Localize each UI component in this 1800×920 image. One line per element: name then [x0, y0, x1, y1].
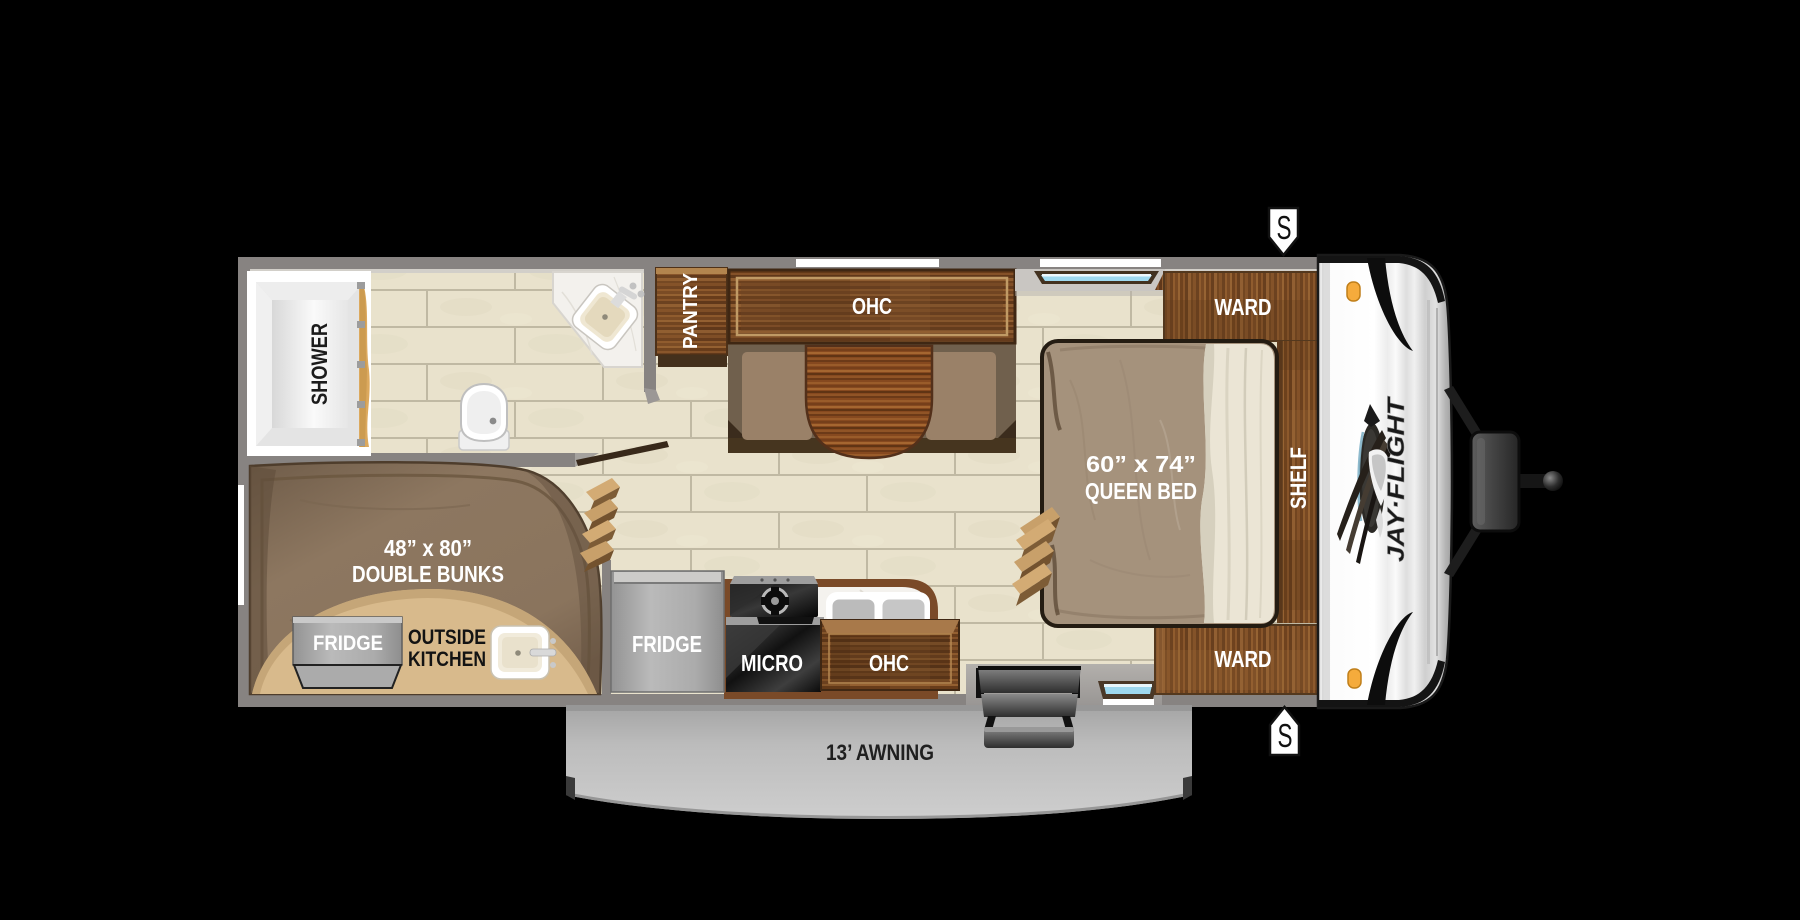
svg-text:13’ AWNING: 13’ AWNING: [826, 740, 934, 765]
svg-text:48” x 80”: 48” x 80”: [384, 535, 472, 561]
svg-text:FRIDGE: FRIDGE: [632, 631, 702, 657]
svg-text:KITCHEN: KITCHEN: [408, 648, 486, 671]
svg-text:S: S: [1278, 717, 1293, 754]
svg-text:60” x 74”: 60” x 74”: [1086, 451, 1196, 477]
svg-text:QUEEN BED: QUEEN BED: [1085, 478, 1197, 504]
svg-text:MICRO: MICRO: [741, 650, 803, 676]
svg-text:WARD: WARD: [1215, 646, 1272, 672]
svg-text:SHELF: SHELF: [1286, 447, 1311, 509]
svg-text:JAY·FLIGHT: JAY·FLIGHT: [1383, 395, 1410, 562]
svg-text:FRIDGE: FRIDGE: [313, 632, 383, 655]
svg-text:PANTRY: PANTRY: [680, 272, 702, 349]
svg-text:OHC: OHC: [852, 293, 892, 319]
svg-text:WARD: WARD: [1215, 294, 1272, 320]
svg-text:DOUBLE BUNKS: DOUBLE BUNKS: [352, 561, 504, 587]
svg-text:OUTSIDE: OUTSIDE: [408, 626, 486, 649]
svg-text:S: S: [1277, 209, 1292, 246]
svg-text:SHOWER: SHOWER: [307, 323, 332, 405]
svg-text:OHC: OHC: [869, 650, 909, 676]
